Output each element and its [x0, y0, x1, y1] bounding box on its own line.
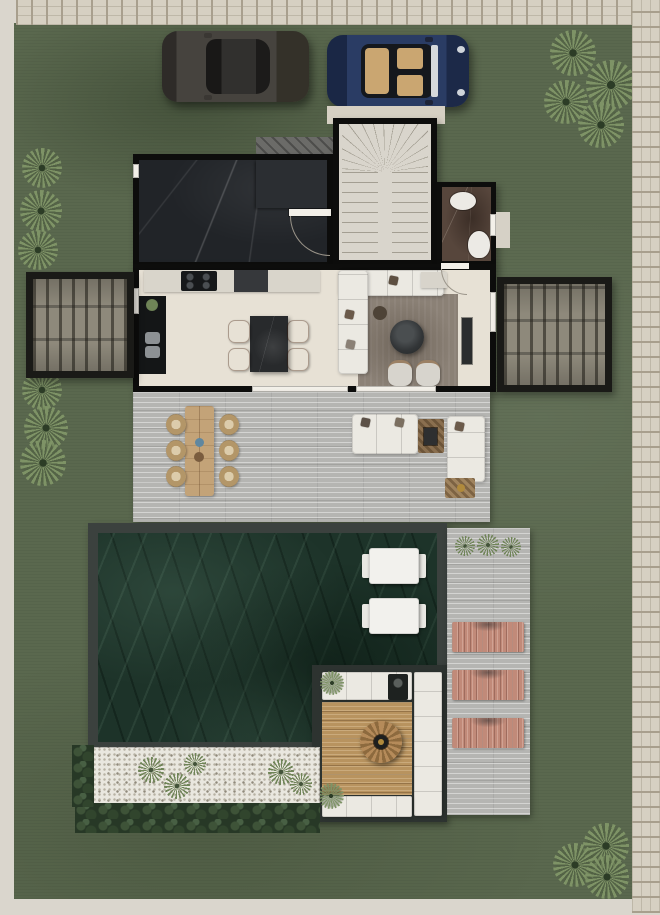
staircase-room [333, 118, 437, 266]
dining-chair [219, 440, 239, 461]
car-windshield [431, 45, 438, 97]
bathroom-toilet [468, 231, 490, 258]
coffee-table [390, 320, 424, 354]
dining-chair [166, 414, 186, 435]
outdoor-sofa-right [447, 416, 485, 482]
window [490, 292, 496, 332]
agave-plant [20, 440, 66, 486]
sun-deck [447, 528, 530, 815]
agave-plant [22, 148, 62, 188]
car-cabin [206, 39, 270, 94]
door-leaf [289, 209, 331, 216]
convertible-car-blue [327, 35, 469, 107]
stair-flight-left [342, 172, 378, 257]
agave-plant [578, 102, 624, 148]
dining-chair [219, 466, 239, 487]
grass-tuft [290, 773, 312, 795]
sports-car-dark [162, 31, 309, 102]
armchair [416, 360, 440, 386]
sink-counter [139, 296, 166, 374]
car-mirror [204, 95, 212, 100]
table-bowl [194, 452, 204, 462]
living-sofa-left [338, 270, 368, 374]
stone-path-right [632, 0, 660, 913]
agave-plant [585, 855, 629, 899]
louvered-pergola-right [497, 277, 612, 392]
pool-daybed [362, 548, 426, 584]
stair-winders [342, 124, 428, 172]
fireplace-tv-unit [462, 318, 472, 364]
grass-tuft [138, 757, 164, 783]
lounge-plant [320, 671, 344, 695]
lounge-plant [318, 783, 344, 809]
agave-plant [18, 230, 58, 270]
car-mirror [425, 100, 433, 105]
open-plan-room [133, 264, 496, 392]
throw-pillow [344, 309, 355, 320]
grass-tuft [184, 753, 206, 775]
throw-pillow [345, 339, 356, 350]
dining-chair [166, 466, 186, 487]
daybed-arm [418, 604, 426, 628]
grass-tuft [164, 773, 190, 799]
lounge-sofa-right [414, 672, 442, 816]
pebble-garden [92, 747, 320, 807]
car-rear-seat [365, 48, 389, 94]
island-chair [228, 348, 250, 371]
throw-pillow [394, 417, 405, 428]
stair-flight-right [392, 172, 428, 257]
kettle-decor [457, 484, 465, 492]
car-mirror [425, 37, 433, 42]
table-vase [195, 438, 204, 447]
dining-chair [219, 414, 239, 435]
grass-tuft [455, 536, 475, 556]
cooktop [181, 271, 217, 291]
armchair [388, 360, 412, 386]
fire-table [424, 428, 437, 445]
flame-dot [378, 739, 384, 745]
wardrobe-block [256, 160, 327, 208]
daybed-arm [418, 554, 426, 578]
pool-daybed [362, 598, 426, 634]
sunken-lounge [312, 665, 447, 822]
daybed-mat [369, 598, 419, 634]
island-chair [287, 320, 309, 343]
site-plan-rendering [0, 0, 660, 915]
side-stool [373, 306, 387, 320]
car-front-seat [397, 75, 423, 96]
kitchen-island [250, 316, 288, 372]
kitchen-counter [144, 270, 320, 292]
throw-pillow [454, 421, 465, 432]
stair-landing [378, 172, 392, 257]
side-entry-pad [496, 212, 510, 248]
bathroom-sink [450, 192, 476, 210]
daybed-mat [369, 548, 419, 584]
agave-plant [20, 190, 62, 232]
car-headlight [457, 46, 465, 53]
island-chair [228, 320, 250, 343]
sink-basin [145, 346, 160, 358]
island-chair [287, 348, 309, 371]
car-front-seat [397, 48, 423, 69]
agave-plant [550, 30, 596, 76]
throw-pillow [388, 275, 399, 286]
grass-tuft [501, 537, 521, 557]
car-headlight [457, 89, 465, 96]
louvered-pergola-left [26, 272, 134, 378]
dining-chair [166, 440, 186, 461]
car-mirror [204, 33, 212, 38]
bbq-grill [388, 674, 408, 700]
grass-tuft [477, 534, 499, 556]
shrub-border-bottom [75, 803, 320, 833]
throw-pillow [360, 417, 371, 428]
kitchen-appliance [234, 270, 268, 292]
sun-lounger [452, 718, 524, 748]
plant-pot [146, 299, 158, 311]
shrub-border-left [72, 745, 94, 807]
sun-lounger [452, 622, 524, 652]
outdoor-deck [133, 392, 490, 522]
bathroom [437, 182, 496, 266]
sink-basin [145, 332, 160, 344]
outdoor-dining-table [185, 406, 214, 496]
sun-lounger [452, 670, 524, 700]
window [133, 164, 139, 178]
stone-path-top [16, 0, 660, 25]
round-fire-table [360, 721, 402, 763]
